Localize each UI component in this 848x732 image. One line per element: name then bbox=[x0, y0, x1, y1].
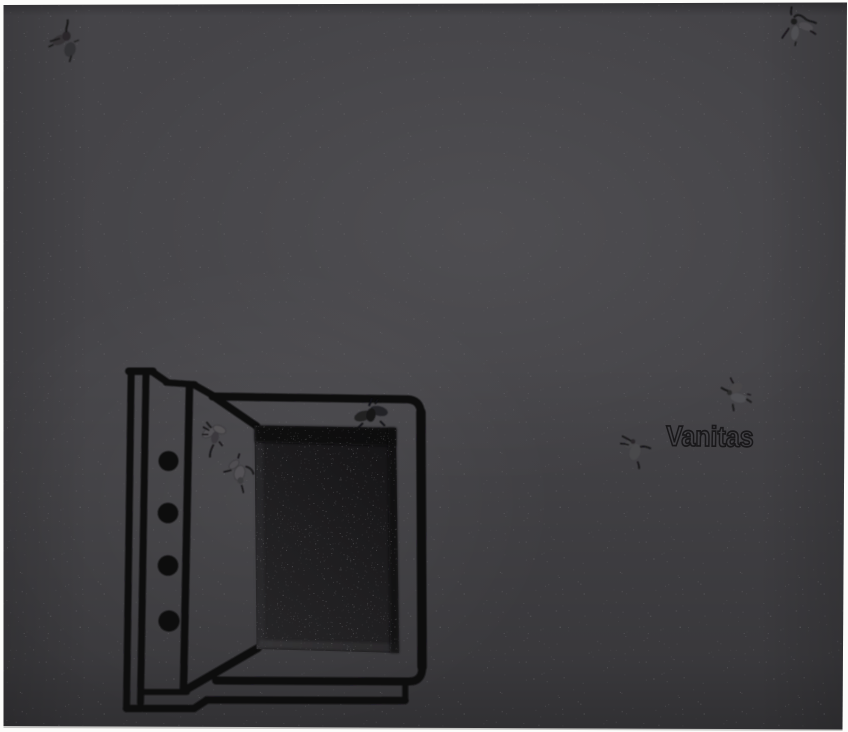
svg-text:Vanitas: Vanitas bbox=[666, 421, 754, 454]
